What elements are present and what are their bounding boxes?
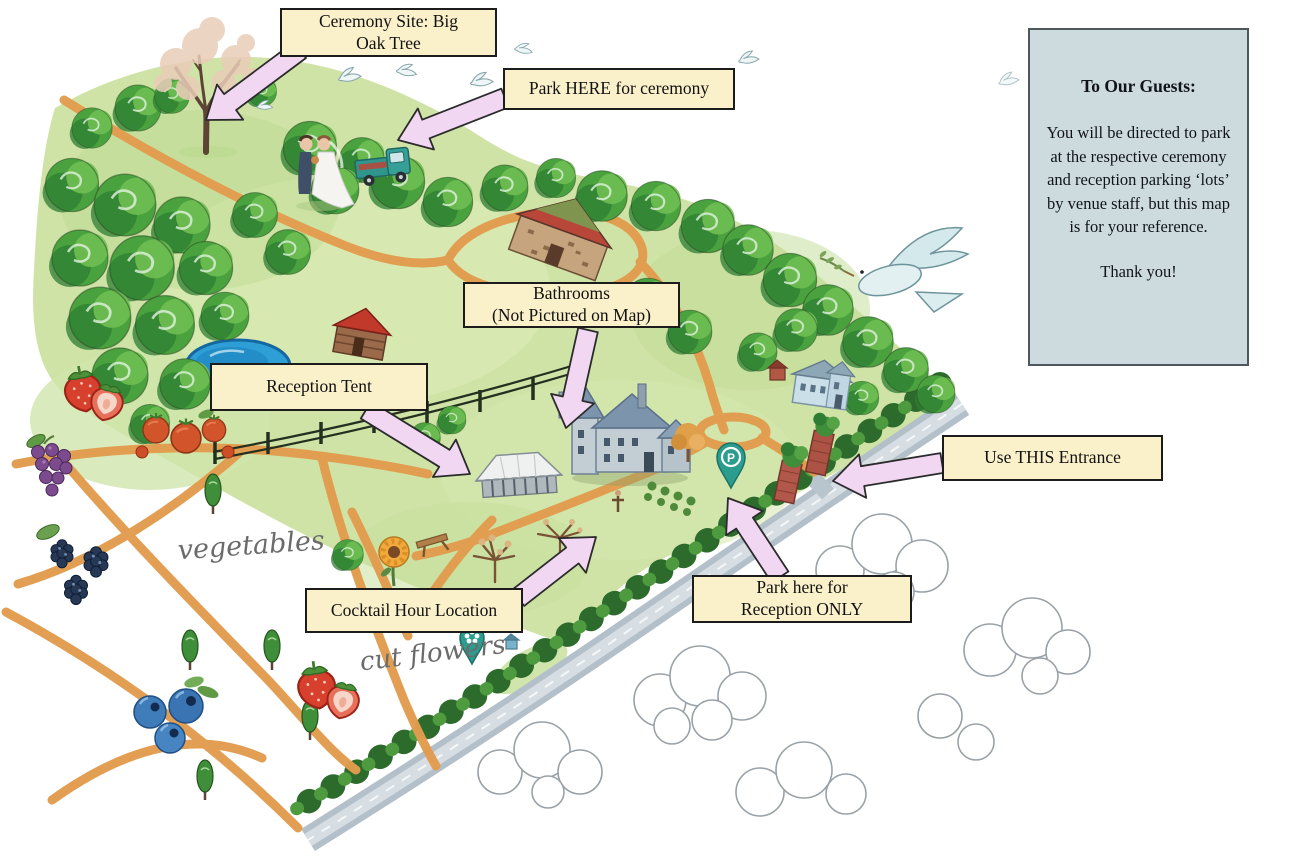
callout-ceremony-site: Ceremony Site: Big Oak Tree [280,8,497,57]
callout-park-ceremony-label: Park HERE for ceremony [529,78,709,100]
callout-use-entrance: Use THIS Entrance [942,435,1163,481]
vegetables-label: vegetables [177,525,326,566]
info-closing: Thank you! [1043,262,1234,282]
callout-cocktail-hour-label: Cocktail Hour Location [331,600,497,622]
info-body: You will be directed to park at the resp… [1043,121,1234,239]
callout-bathrooms: Bathrooms (Not Pictured on Map) [463,282,680,328]
blue-shed-icon [504,634,519,649]
parking-pin-letter: P [727,451,735,465]
info-title: To Our Guests: [1043,76,1234,97]
callout-park-reception: Park here for Reception ONLY [692,575,912,623]
callout-use-entrance-label: Use THIS Entrance [984,447,1121,469]
callout-park-ceremony: Park HERE for ceremony [503,68,735,110]
callout-park-reception-label: Park here for Reception ONLY [741,577,863,620]
callout-reception-tent: Reception Tent [210,363,428,411]
wedding-venue-map-page: P [0,0,1296,864]
callout-cocktail-hour: Cocktail Hour Location [305,588,523,633]
callout-ceremony-site-label: Ceremony Site: Big Oak Tree [319,11,458,54]
callout-reception-tent-label: Reception Tent [266,376,372,398]
guest-info-box: To Our Guests: You will be directed to p… [1028,28,1249,366]
callout-bathrooms-label: Bathrooms (Not Pictured on Map) [492,283,651,326]
